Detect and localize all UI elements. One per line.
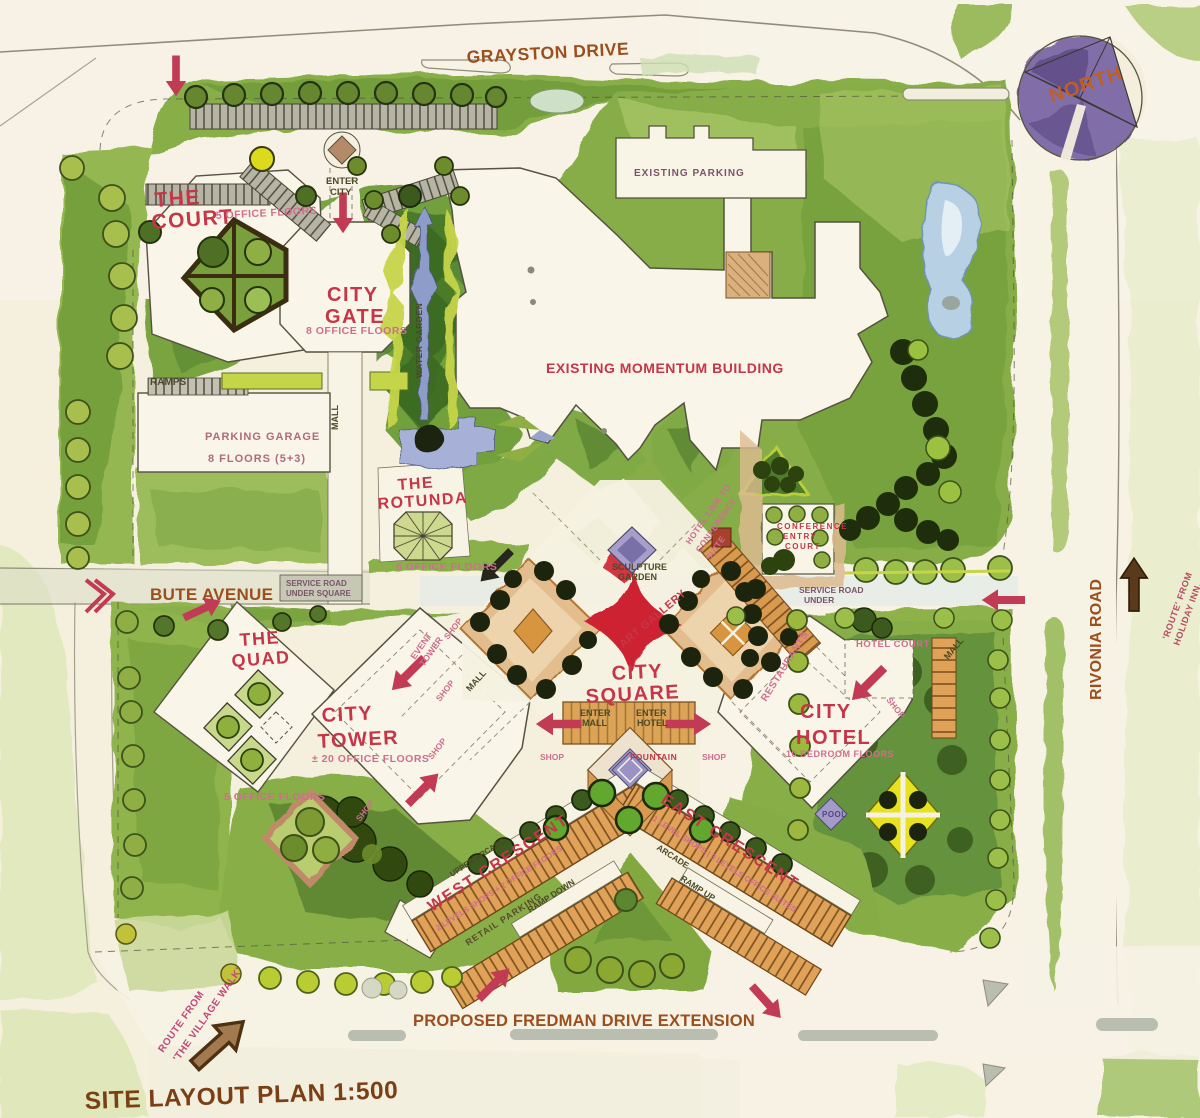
svg-text:CITY: CITY [327,284,379,306]
svg-text:QUAD: QUAD [231,647,291,671]
svg-text:THE: THE [397,474,435,494]
svg-text:EXISTING PARKING: EXISTING PARKING [634,168,745,179]
svg-text:COURT: COURT [785,542,821,551]
svg-text:ENTER: ENTER [580,708,611,718]
svg-text:± 20 OFFICE FLOORS: ± 20 OFFICE FLOORS [312,753,429,765]
svg-text:CITY: CITY [611,660,664,685]
svg-text:PARKING GARAGE: PARKING GARAGE [205,431,320,443]
svg-text:ENTER: ENTER [326,176,358,187]
svg-text:GARDEN: GARDEN [618,572,657,582]
svg-text:WATER GARDEN: WATER GARDEN [414,303,424,378]
svg-text:FOUNTAIN: FOUNTAIN [630,752,677,762]
svg-text:SCULPTURE: SCULPTURE [612,562,667,572]
svg-text:PROPOSED FREDMAN DRIVE EXTE: PROPOSED FREDMAN DRIVE EXTENSION [413,1012,755,1030]
svg-text:ENTRY: ENTRY [783,532,817,541]
svg-text:HOTEL: HOTEL [637,718,668,728]
svg-text:BUTE AVENUE: BUTE AVENUE [150,585,273,604]
svg-text:RIVONIA ROAD: RIVONIA ROAD [1088,579,1105,700]
svg-text:SERVICE ROAD: SERVICE ROAD [799,585,864,595]
svg-text:TOWER: TOWER [317,727,400,753]
svg-text:8 OFFICE FLOORS: 8 OFFICE FLOORS [306,325,407,337]
svg-text:THE: THE [239,627,281,650]
svg-text:10 BEDROOM FLOORS: 10 BEDROOM FLOORS [786,749,894,759]
svg-text:MALL: MALL [582,718,607,728]
svg-text:CITY: CITY [330,187,352,198]
svg-text:POOL: POOL [822,810,847,819]
svg-text:8 FLOORS (5+3): 8 FLOORS (5+3) [208,453,306,465]
svg-text:UNDER SQUARE: UNDER SQUARE [286,589,352,598]
svg-text:CITY: CITY [800,701,852,723]
svg-text:MALL: MALL [330,405,340,430]
svg-text:ENTER: ENTER [636,708,667,718]
svg-text:SERVICE ROAD: SERVICE ROAD [286,579,347,588]
svg-text:HOTEL COURT: HOTEL COURT [856,639,930,650]
svg-text:RAMPS: RAMPS [150,377,186,388]
svg-text:5 OFFICE FLOORS: 5 OFFICE FLOORS [224,791,325,803]
svg-text:SHOP: SHOP [540,752,564,762]
svg-text:CITY: CITY [321,702,374,727]
svg-text:6 OFFICE FLOORS: 6 OFFICE FLOORS [396,561,497,573]
svg-text:HOTEL: HOTEL [796,727,871,749]
svg-text:EXISTING MOMENTUM BUILDING: EXISTING MOMENTUM BUILDING [546,360,784,376]
svg-text:SHOP: SHOP [702,752,726,762]
svg-text:UNDER: UNDER [804,595,834,605]
svg-text:CONFERENCE: CONFERENCE [777,522,848,531]
